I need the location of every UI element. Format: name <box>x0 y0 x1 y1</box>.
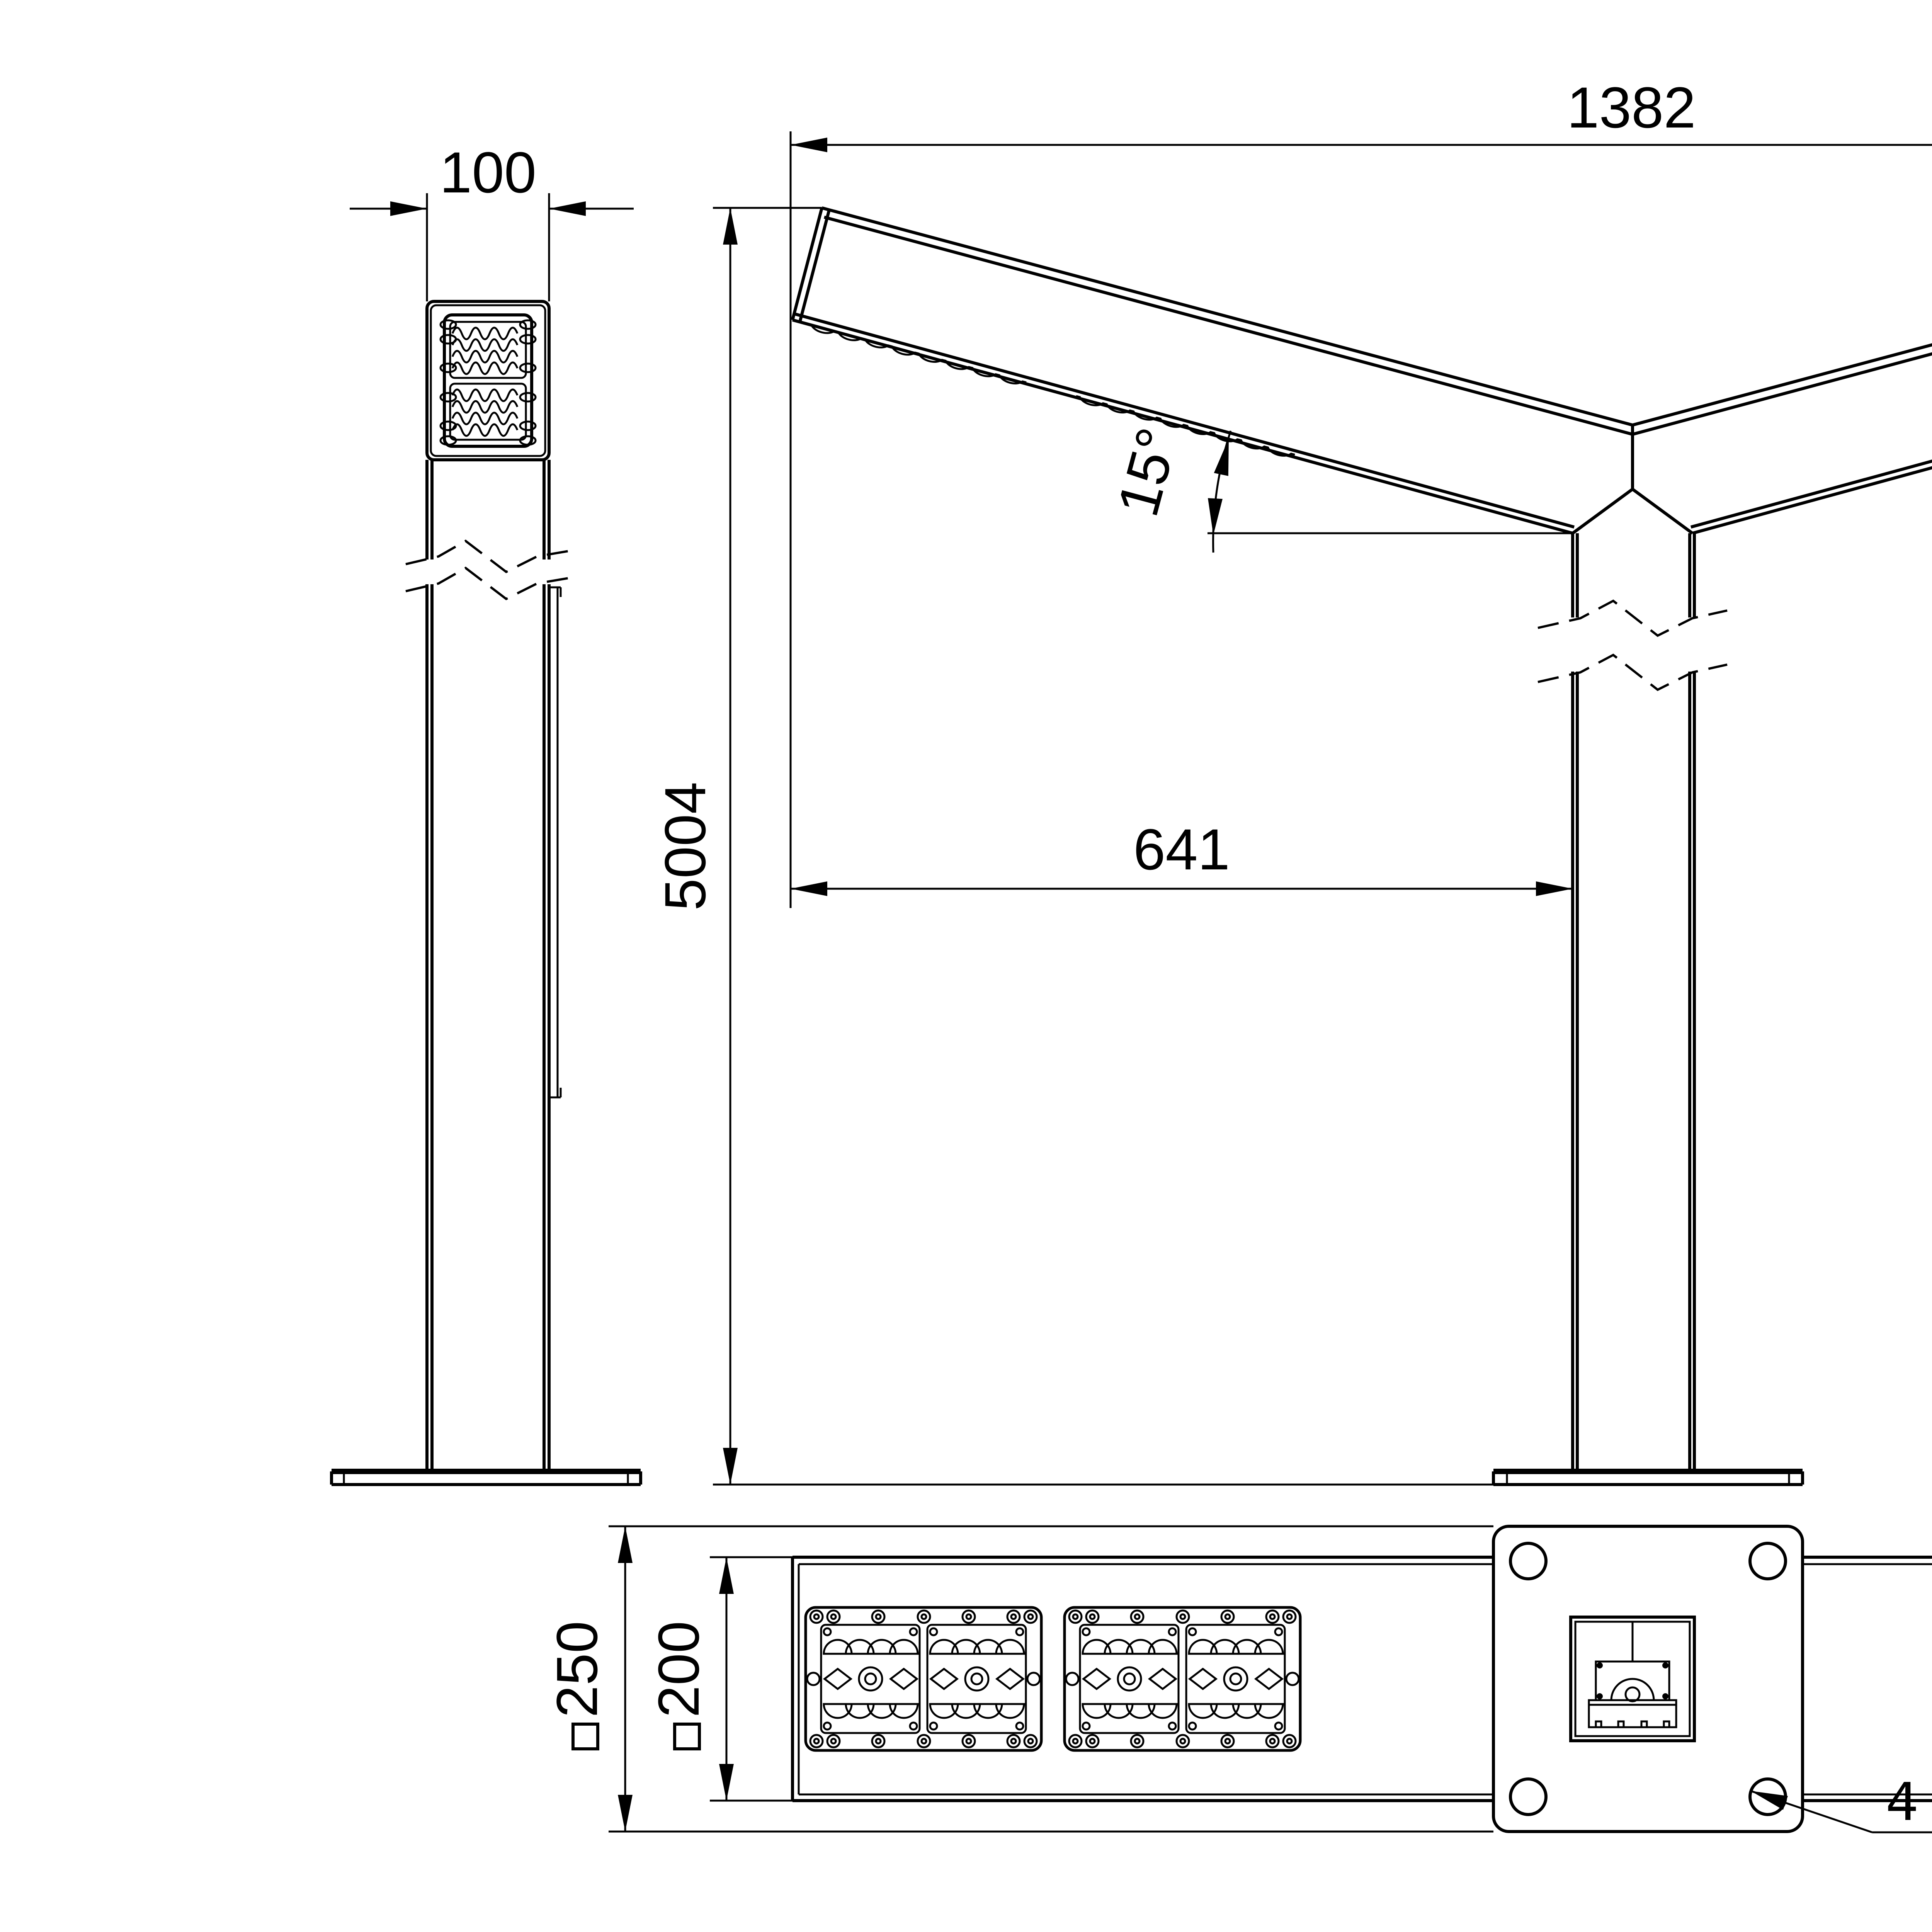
dim-arm-reach: 641 <box>791 817 1573 896</box>
luminaire-pole-drawing: 100 <box>0 0 1932 1932</box>
hole-note-prefix: 4 отв. <box>1886 1772 1932 1832</box>
dim-overall-width-text: 1382 <box>1567 75 1696 140</box>
front-view-right-arm <box>1633 208 1932 533</box>
side-view-cable-channel <box>549 587 561 1097</box>
front-view-base-plate <box>1493 1471 1803 1485</box>
plan-view-led-panel <box>806 1607 1041 1750</box>
plan-view-led-panel <box>1065 1607 1300 1750</box>
dim-bar-size-text: 200 <box>646 1621 711 1718</box>
dim-overall-width: 1382 <box>791 75 1932 908</box>
dim-head-width: 100 <box>350 140 634 301</box>
square-symbol-200 <box>675 1724 699 1749</box>
square-symbol-250 <box>573 1724 598 1749</box>
front-view: 1382 5004 641 15° <box>653 75 1932 1485</box>
dim-arm-angle-text: 15° <box>1105 421 1190 523</box>
plan-view: 250 200 4 отв. 17,50 <box>544 1526 1932 1832</box>
front-view-arm-joint <box>1573 425 1692 533</box>
dim-arm-reach-text: 641 <box>1133 817 1230 882</box>
technical-drawing-page: 100 <box>0 0 1932 1932</box>
front-view-pole <box>1538 533 1727 1471</box>
dim-head-width-text: 100 <box>440 140 536 205</box>
dim-total-height-text: 5004 <box>653 782 718 911</box>
side-view-pole <box>406 460 571 1471</box>
dim-total-height: 5004 <box>653 208 1493 1485</box>
side-view-luminaire-head <box>427 301 549 460</box>
front-view-left-arm <box>793 208 1633 533</box>
dim-plate-size-text: 250 <box>544 1621 609 1718</box>
plan-view-mount-plate <box>1493 1526 1803 1832</box>
dim-arm-angle: 15° <box>1105 421 1571 553</box>
side-view: 100 <box>332 140 641 1485</box>
break-line <box>1538 655 1727 690</box>
break-line <box>1538 601 1727 636</box>
side-view-base-plate <box>332 1471 641 1485</box>
dim-bar-size: 200 <box>646 1557 793 1801</box>
